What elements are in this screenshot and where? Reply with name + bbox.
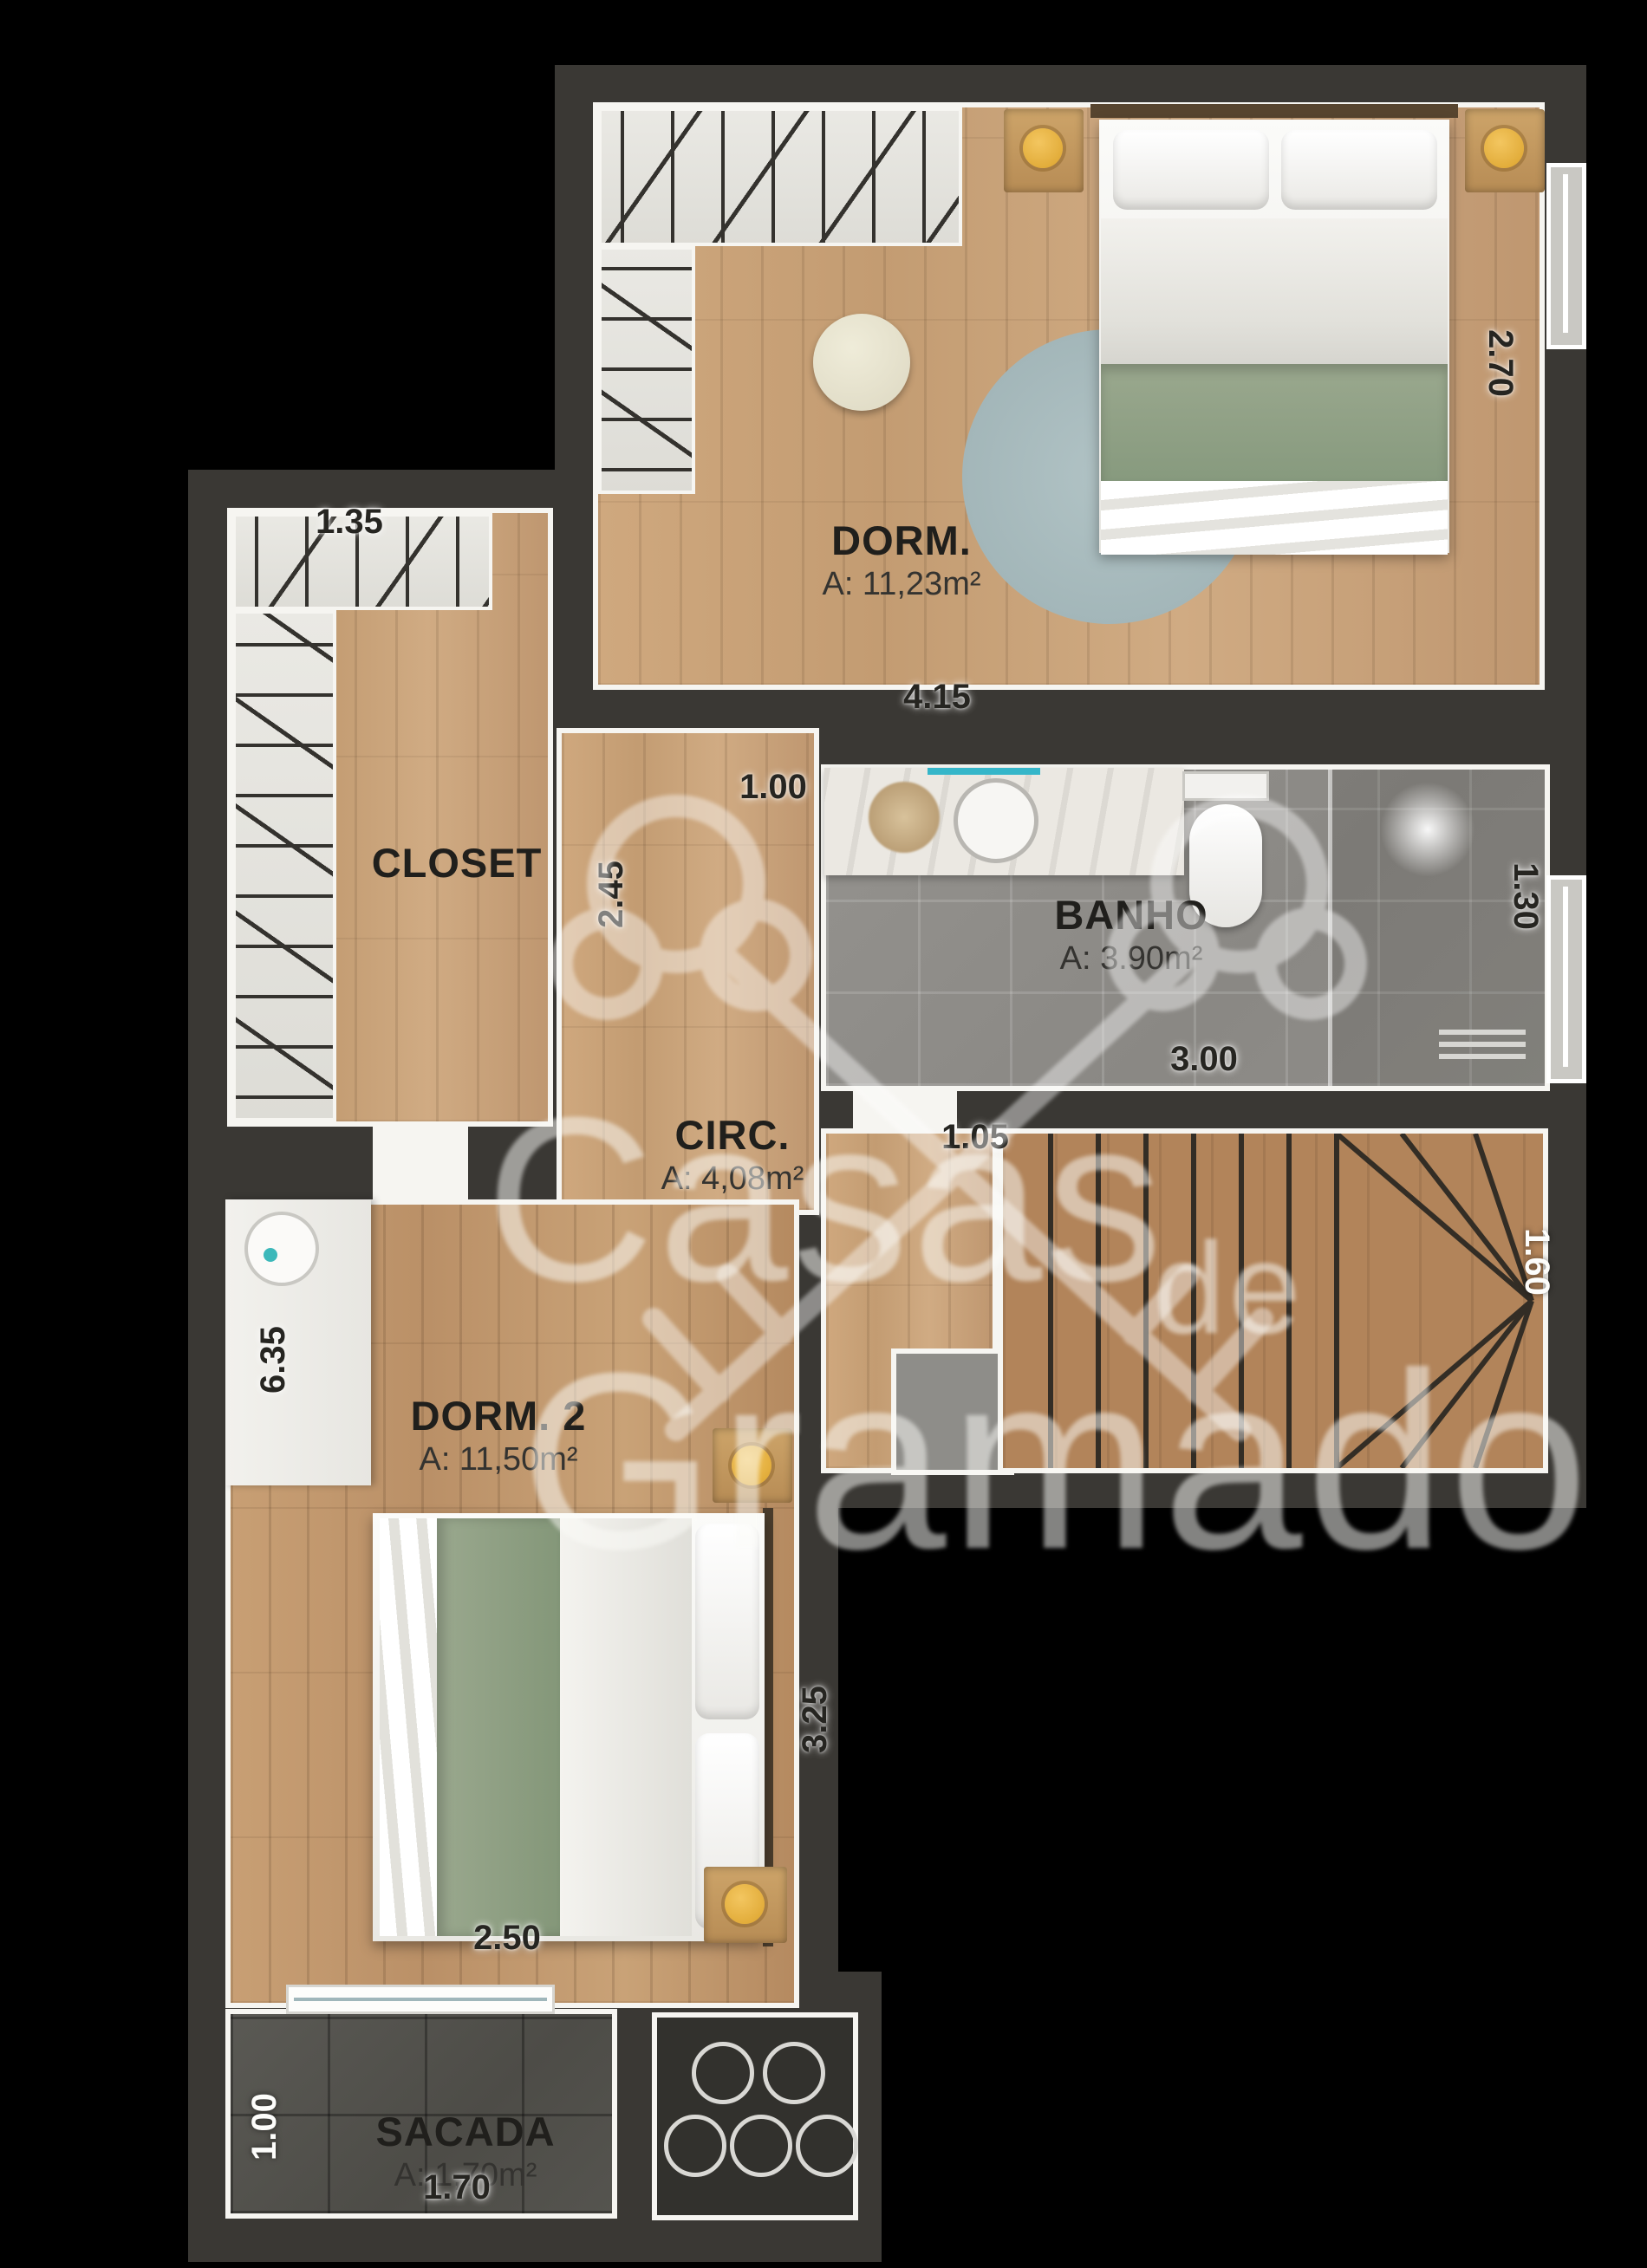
room-label-dorm1: DORM. A: 11,23m² (737, 517, 1066, 603)
closet-door-opening (373, 1121, 468, 1205)
pillow (1113, 130, 1269, 210)
dorm1-window (1546, 163, 1586, 349)
grill-burner-icon (796, 2115, 858, 2177)
dim-stair-width: 1.60 (1516, 1205, 1558, 1318)
window-glass-line (1563, 887, 1568, 1067)
soap-icon (264, 1248, 277, 1262)
blanket (1101, 364, 1448, 481)
wardrobe-icon (598, 246, 695, 494)
dim-dorm2-width: 2.50 (451, 1917, 563, 1959)
floorplan-canvas: DORM. A: 11,23m² CLOSET BANHO A: 3.90m² … (0, 0, 1647, 2268)
lamp-icon (1023, 128, 1063, 168)
grill-burner-icon (664, 2115, 726, 2177)
dim-dorm2-bed-wall: 3.25 (794, 1663, 836, 1776)
sliding-door-glass-line (294, 1998, 547, 2001)
room-name: SACADA (301, 2108, 630, 2155)
grill-panel (652, 2012, 858, 2220)
grill-burner-icon (692, 2042, 754, 2104)
window-glass-line (1563, 174, 1568, 333)
vanity-bowl-icon (244, 1212, 319, 1286)
wardrobe-icon (598, 107, 962, 246)
lamp-icon (725, 1884, 765, 1924)
headboard (1090, 104, 1458, 118)
room-area: A: 11,23m² (737, 566, 1066, 603)
bed-sheet (380, 1518, 437, 1936)
pouf-icon (813, 314, 910, 411)
watermark-text: Casas (485, 1066, 1166, 1335)
banho-window (1546, 875, 1586, 1083)
dim-sacada-width: 1.70 (400, 2167, 513, 2208)
dim-banho-depth: 1.30 (1505, 840, 1546, 952)
dim-closet-width: 1.35 (293, 501, 406, 543)
sacada-sliding-door (286, 1985, 555, 2014)
bed-sheet (1101, 481, 1448, 555)
bed-dorm1 (1090, 104, 1458, 563)
lamp-icon (1484, 128, 1524, 168)
pillow (1281, 130, 1437, 210)
dim-dorm2-length: 6.35 (252, 1303, 294, 1416)
dim-dorm1-width: 4.15 (881, 676, 993, 718)
shower-drain-icon (1439, 1030, 1526, 1035)
room-name: DORM. (737, 517, 1066, 564)
dim-sacada-depth: 1.00 (244, 2070, 285, 2183)
grill-burner-icon (730, 2115, 792, 2177)
dim-dorm1-depth: 2.70 (1480, 307, 1521, 419)
grill-burner-icon (763, 2042, 825, 2104)
duvet (1101, 218, 1448, 364)
watermark-text: Gramado (520, 1317, 1592, 1606)
